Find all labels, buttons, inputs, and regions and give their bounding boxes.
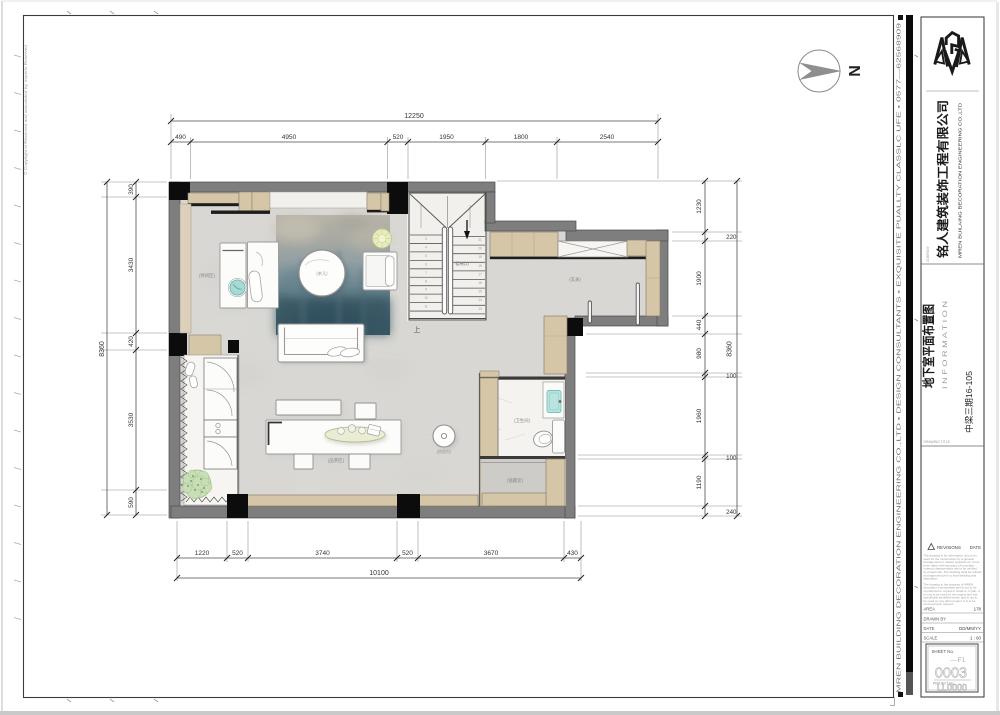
svg-text:SCALE: SCALE	[924, 636, 938, 641]
svg-text:10100: 10100	[369, 570, 389, 577]
svg-text:DRAWING TITLE: DRAWING TITLE	[924, 440, 951, 444]
svg-text:© Copyright st Reserved and as: © Copyright st Reserved and associated b…	[24, 45, 28, 175]
svg-text:REVISIONS: REVISIONS	[937, 545, 961, 550]
svg-text:490: 490	[175, 134, 186, 141]
svg-text:21: 21	[478, 238, 482, 242]
svg-text:(休闲区): (休闲区)	[199, 272, 216, 279]
svg-text:15: 15	[478, 290, 482, 294]
svg-text:13: 13	[478, 307, 482, 311]
svg-text:中梁三期16-105: 中梁三期16-105	[964, 371, 974, 433]
svg-text:11: 11	[424, 305, 428, 309]
svg-text:4: 4	[425, 245, 427, 249]
svg-text:铭人建筑装饰工程有限公司: 铭人建筑装饰工程有限公司	[935, 100, 950, 258]
svg-text:5: 5	[425, 254, 427, 258]
svg-text:1950: 1950	[439, 134, 454, 141]
svg-text:AREA: AREA	[924, 607, 936, 612]
svg-text:520: 520	[393, 134, 404, 141]
svg-text:DRAWN BY: DRAWN BY	[924, 617, 947, 622]
svg-text:2540: 2540	[600, 134, 615, 141]
svg-text:3740: 3740	[315, 550, 330, 557]
svg-text:16: 16	[478, 281, 482, 285]
svg-text:3430: 3430	[128, 257, 135, 272]
svg-text:14: 14	[478, 298, 482, 302]
svg-text:—F1: —F1	[950, 657, 965, 664]
svg-text:(卫生间): (卫生间)	[514, 417, 531, 424]
svg-text:19: 19	[478, 255, 482, 259]
svg-text:1 : 60: 1 : 60	[970, 636, 982, 641]
svg-text:SHEET No.: SHEET No.	[932, 649, 955, 654]
svg-text:(储藏室): (储藏室)	[507, 477, 524, 484]
svg-text:18: 18	[478, 264, 482, 268]
svg-text:1190: 1190	[696, 475, 703, 489]
svg-text:20: 20	[478, 247, 482, 251]
svg-text:3530: 3530	[128, 412, 135, 427]
svg-text:N: N	[847, 65, 864, 77]
svg-text:0003: 0003	[935, 666, 967, 682]
svg-text:MREN BUILDING DECORATION EN: MREN BUILDING DECORATION ENGINEERING CO.…	[897, 23, 903, 693]
svg-text:178: 178	[974, 607, 982, 612]
svg-text:390: 390	[128, 184, 135, 195]
svg-text:100: 100	[726, 373, 737, 380]
svg-text:1230: 1230	[696, 199, 703, 214]
svg-text:(梳妆台): (梳妆台)	[437, 448, 452, 454]
svg-text:(茶几): (茶几)	[316, 270, 328, 277]
svg-text:4950: 4950	[282, 134, 297, 141]
svg-text:DATE: DATE	[970, 545, 981, 550]
svg-text:980: 980	[696, 348, 703, 359]
svg-text:COMPANY: COMPANY	[926, 245, 930, 262]
svg-text:LL0000: LL0000	[937, 683, 967, 693]
svg-text:DATE: DATE	[924, 626, 935, 631]
svg-text:420: 420	[128, 336, 135, 347]
svg-text:240: 240	[726, 509, 737, 516]
svg-text:3670: 3670	[484, 550, 499, 557]
svg-text:1800: 1800	[514, 134, 529, 141]
svg-text:220: 220	[726, 234, 737, 241]
svg-text:17: 17	[478, 272, 482, 276]
svg-text:MREN BUILAING BECORATION ENGI: MREN BUILAING BECORATION ENGINEERING CO.…	[958, 102, 963, 258]
svg-text:430: 430	[567, 550, 578, 557]
svg-text:楼梯(1): 楼梯(1)	[455, 260, 469, 267]
svg-text:590: 590	[128, 497, 135, 508]
svg-text:I N F O R M A T I O N: I N F O R M A T I O N	[943, 301, 949, 389]
svg-text:8360: 8360	[99, 341, 106, 357]
svg-text:440: 440	[696, 319, 703, 330]
svg-text:100: 100	[726, 455, 737, 462]
svg-text:(玄关): (玄关)	[569, 276, 581, 283]
svg-text:7: 7	[425, 271, 427, 275]
svg-text:3: 3	[425, 237, 427, 241]
svg-text:1960: 1960	[696, 408, 703, 423]
svg-text:地下室平面布置图: 地下室平面布置图	[921, 304, 936, 388]
svg-text:上: 上	[414, 325, 421, 334]
svg-text:10: 10	[424, 296, 428, 300]
svg-text:520: 520	[402, 550, 413, 557]
svg-text:1220: 1220	[195, 550, 210, 557]
svg-text:520: 520	[232, 550, 243, 557]
svg-text:8: 8	[425, 279, 427, 283]
svg-text:6: 6	[425, 262, 427, 266]
svg-text:fabrication.: fabrication.	[924, 577, 939, 581]
svg-text:9: 9	[425, 288, 427, 292]
svg-text:12250: 12250	[404, 113, 424, 120]
svg-text:8360: 8360	[727, 341, 734, 357]
svg-text:(品茶区): (品茶区)	[328, 457, 345, 464]
svg-text:DD/MM/YY: DD/MM/YY	[959, 626, 981, 631]
svg-text:1900: 1900	[696, 271, 703, 286]
